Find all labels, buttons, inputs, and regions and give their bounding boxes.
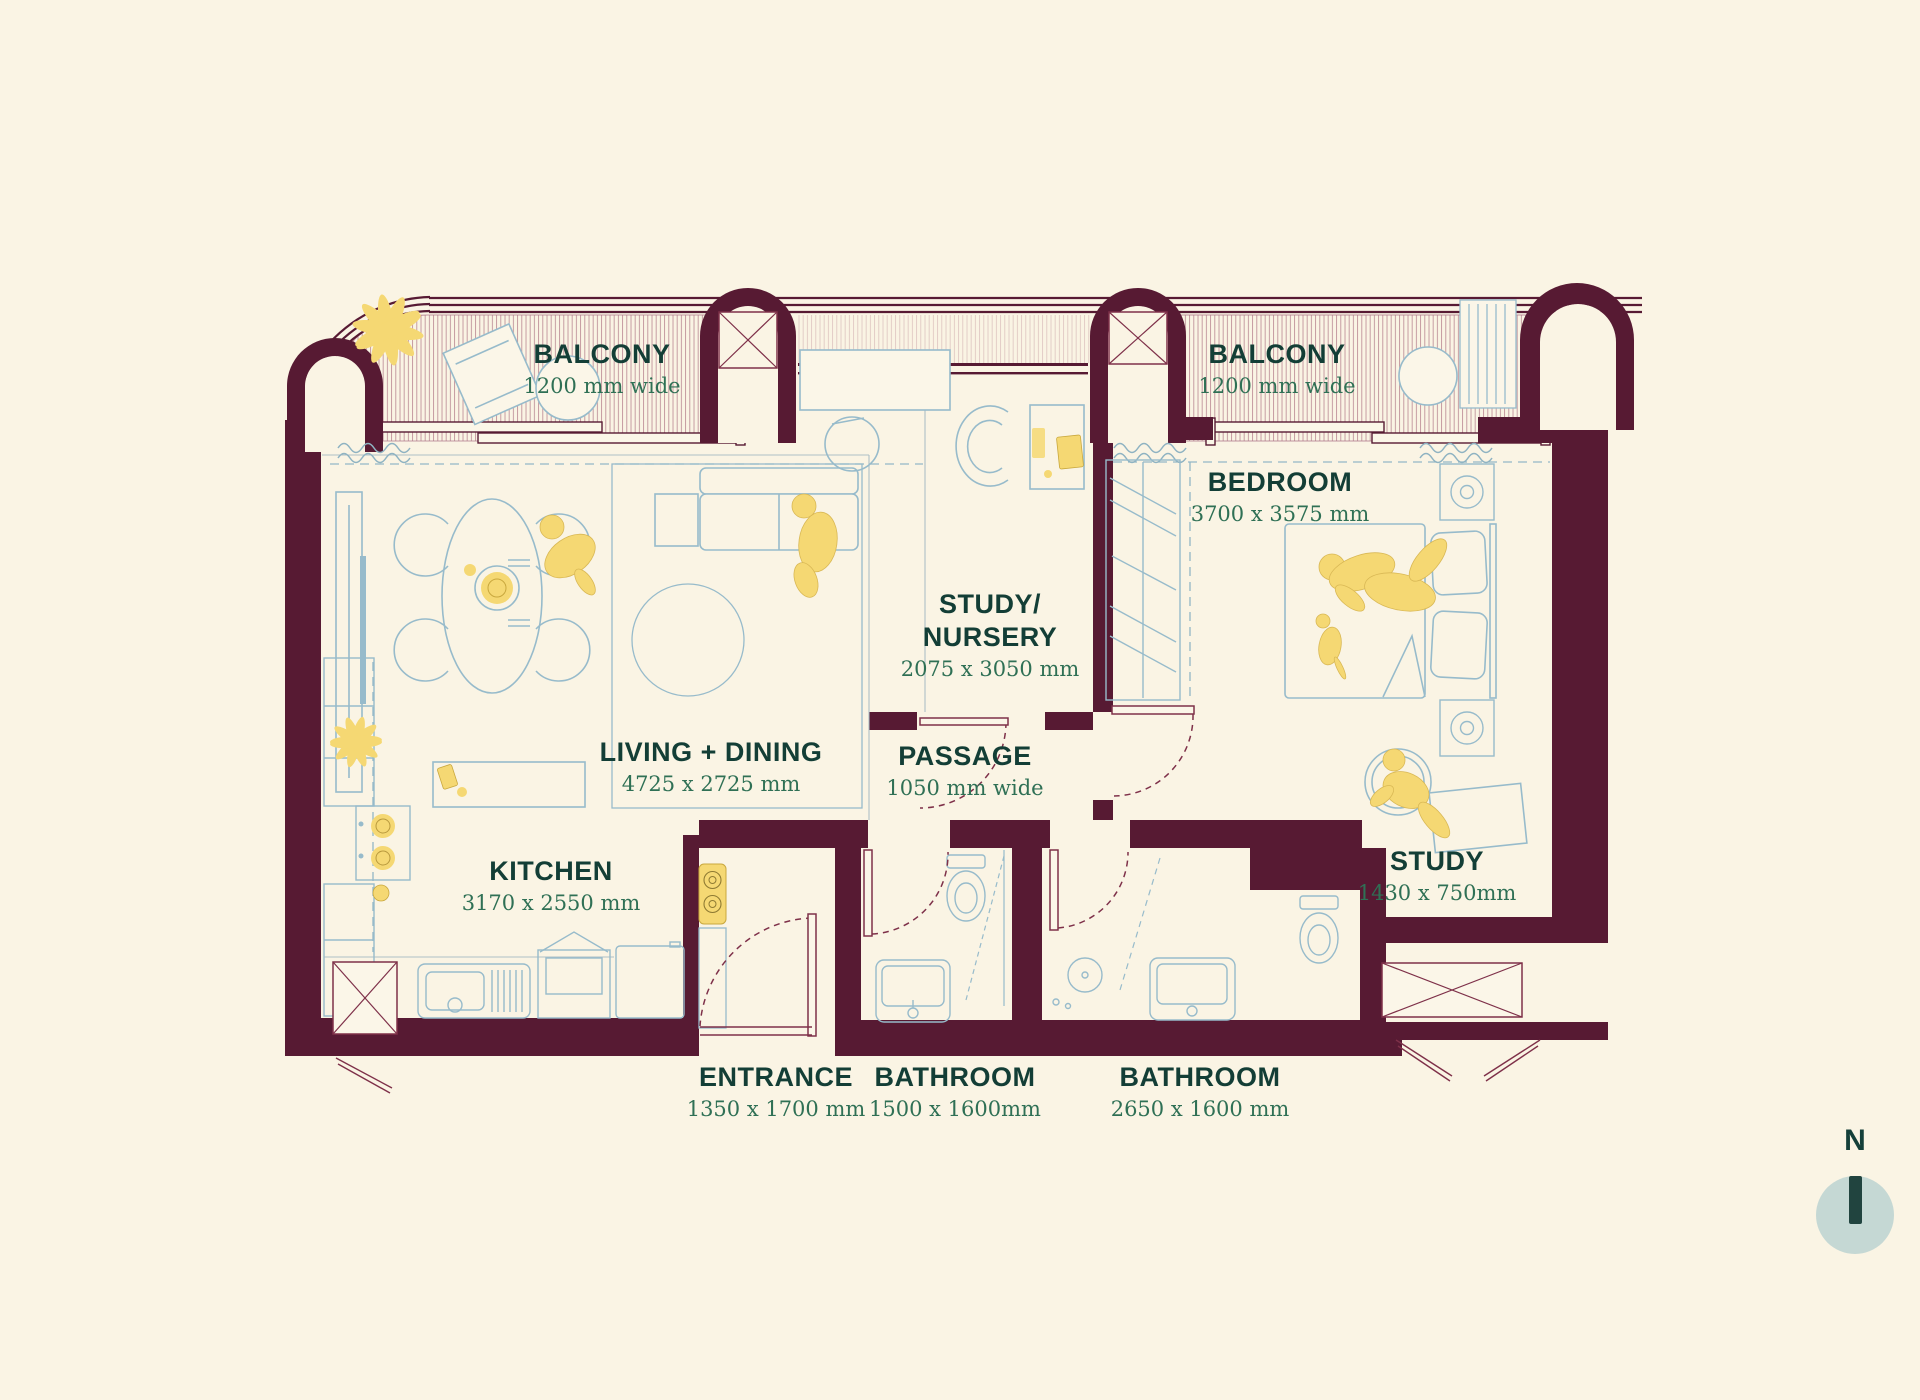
label-study-nursery: STUDY/ NURSERY 2075 x 3050 mm — [901, 588, 1080, 681]
room-name: LIVING + DINING — [600, 736, 823, 769]
label-bedroom: BEDROOM 3700 x 3575 mm — [1191, 466, 1370, 526]
balcony-ac-louvre — [1460, 300, 1516, 408]
balcony-table-right — [1399, 347, 1457, 405]
floorplan-drawing — [0, 0, 1920, 1400]
arch-column-left — [700, 288, 796, 443]
label-balcony-left: BALCONY 1200 mm wide — [523, 338, 680, 398]
label-passage: PASSAGE 1050 mm wide — [886, 740, 1043, 800]
island-items — [437, 764, 467, 797]
room-dims: 1200 mm wide — [523, 374, 680, 398]
room-name: PASSAGE — [886, 740, 1043, 773]
shaft-ac-closet — [1382, 943, 1552, 1081]
curtain-waves — [338, 444, 1492, 463]
bathroom2-basin — [1053, 958, 1102, 1009]
hob — [359, 814, 396, 901]
floorplan-canvas: BALCONY 1200 mm wide BALCONY 1200 mm wid… — [0, 0, 1920, 1400]
room-name: BEDROOM — [1191, 466, 1370, 499]
bathroom2-shower — [1120, 858, 1160, 990]
bathroom2-toilet — [1300, 896, 1338, 963]
bathroom1-toilet — [947, 855, 985, 921]
water-heater — [699, 864, 726, 924]
laptop-nursery — [1032, 428, 1084, 478]
room-name: KITCHEN — [462, 855, 641, 888]
room-dims: 4725 x 2725 mm — [600, 772, 823, 796]
label-entrance: ENTRANCE 1350 x 1700 mm — [687, 1061, 866, 1121]
room-dims: 3700 x 3575 mm — [1191, 502, 1370, 526]
wardrobe — [1106, 460, 1180, 700]
north-label: N — [1844, 1124, 1866, 1158]
label-bathroom-2: BATHROOM 2650 x 1600 mm — [1111, 1061, 1290, 1121]
room-name: STUDY — [1358, 845, 1517, 878]
label-bathroom-1: BATHROOM 1500 x 1600mm — [869, 1061, 1041, 1121]
cat — [1316, 614, 1348, 680]
shaft-kitchen — [333, 962, 397, 1093]
room-dims: 1200 mm wide — [1198, 374, 1355, 398]
arch-column-far-right — [1520, 283, 1634, 430]
compass-needle-icon — [1849, 1176, 1862, 1224]
room-dims: 2075 x 3050 mm — [901, 657, 1080, 681]
label-balcony-right: BALCONY 1200 mm wide — [1198, 338, 1355, 398]
room-name: BALCONY — [523, 338, 680, 371]
room-dims: 3170 x 2550 mm — [462, 891, 641, 915]
label-kitchen: KITCHEN 3170 x 2550 mm — [462, 855, 641, 915]
bed — [1285, 524, 1496, 698]
bathroom1-vanity — [876, 960, 950, 1022]
room-name: STUDY/ — [901, 588, 1080, 621]
room-dims: 2650 x 1600 mm — [1111, 1097, 1290, 1121]
room-name: NURSERY — [901, 621, 1080, 654]
room-dims: 1350 x 1700 mm — [687, 1097, 866, 1121]
room-dims: 1050 mm wide — [886, 776, 1043, 800]
bathroom1-shower — [966, 850, 1004, 1006]
entry-cabinet — [699, 928, 726, 1028]
kitchen-sink — [418, 964, 530, 1018]
room-name: ENTRANCE — [687, 1061, 866, 1094]
room-name: BALCONY — [1198, 338, 1355, 371]
room-dims: 1500 x 1600mm — [869, 1097, 1041, 1121]
nightstands — [1440, 464, 1494, 756]
bathroom2-vanity — [1150, 958, 1235, 1020]
room-name: BATHROOM — [1111, 1061, 1290, 1094]
kitchen-corner-unit — [538, 932, 610, 1018]
table-plate — [464, 564, 513, 604]
fridge — [616, 942, 684, 1018]
room-dims: 1430 x 750mm — [1358, 881, 1517, 905]
arch-column-right — [1090, 288, 1186, 443]
label-living-dining: LIVING + DINING 4725 x 2725 mm — [600, 736, 823, 796]
person-dining — [537, 515, 604, 598]
bay-desk — [800, 350, 950, 471]
room-name: BATHROOM — [869, 1061, 1041, 1094]
arch-column-far-left — [287, 338, 383, 452]
label-study: STUDY 1430 x 750mm — [1358, 845, 1517, 905]
